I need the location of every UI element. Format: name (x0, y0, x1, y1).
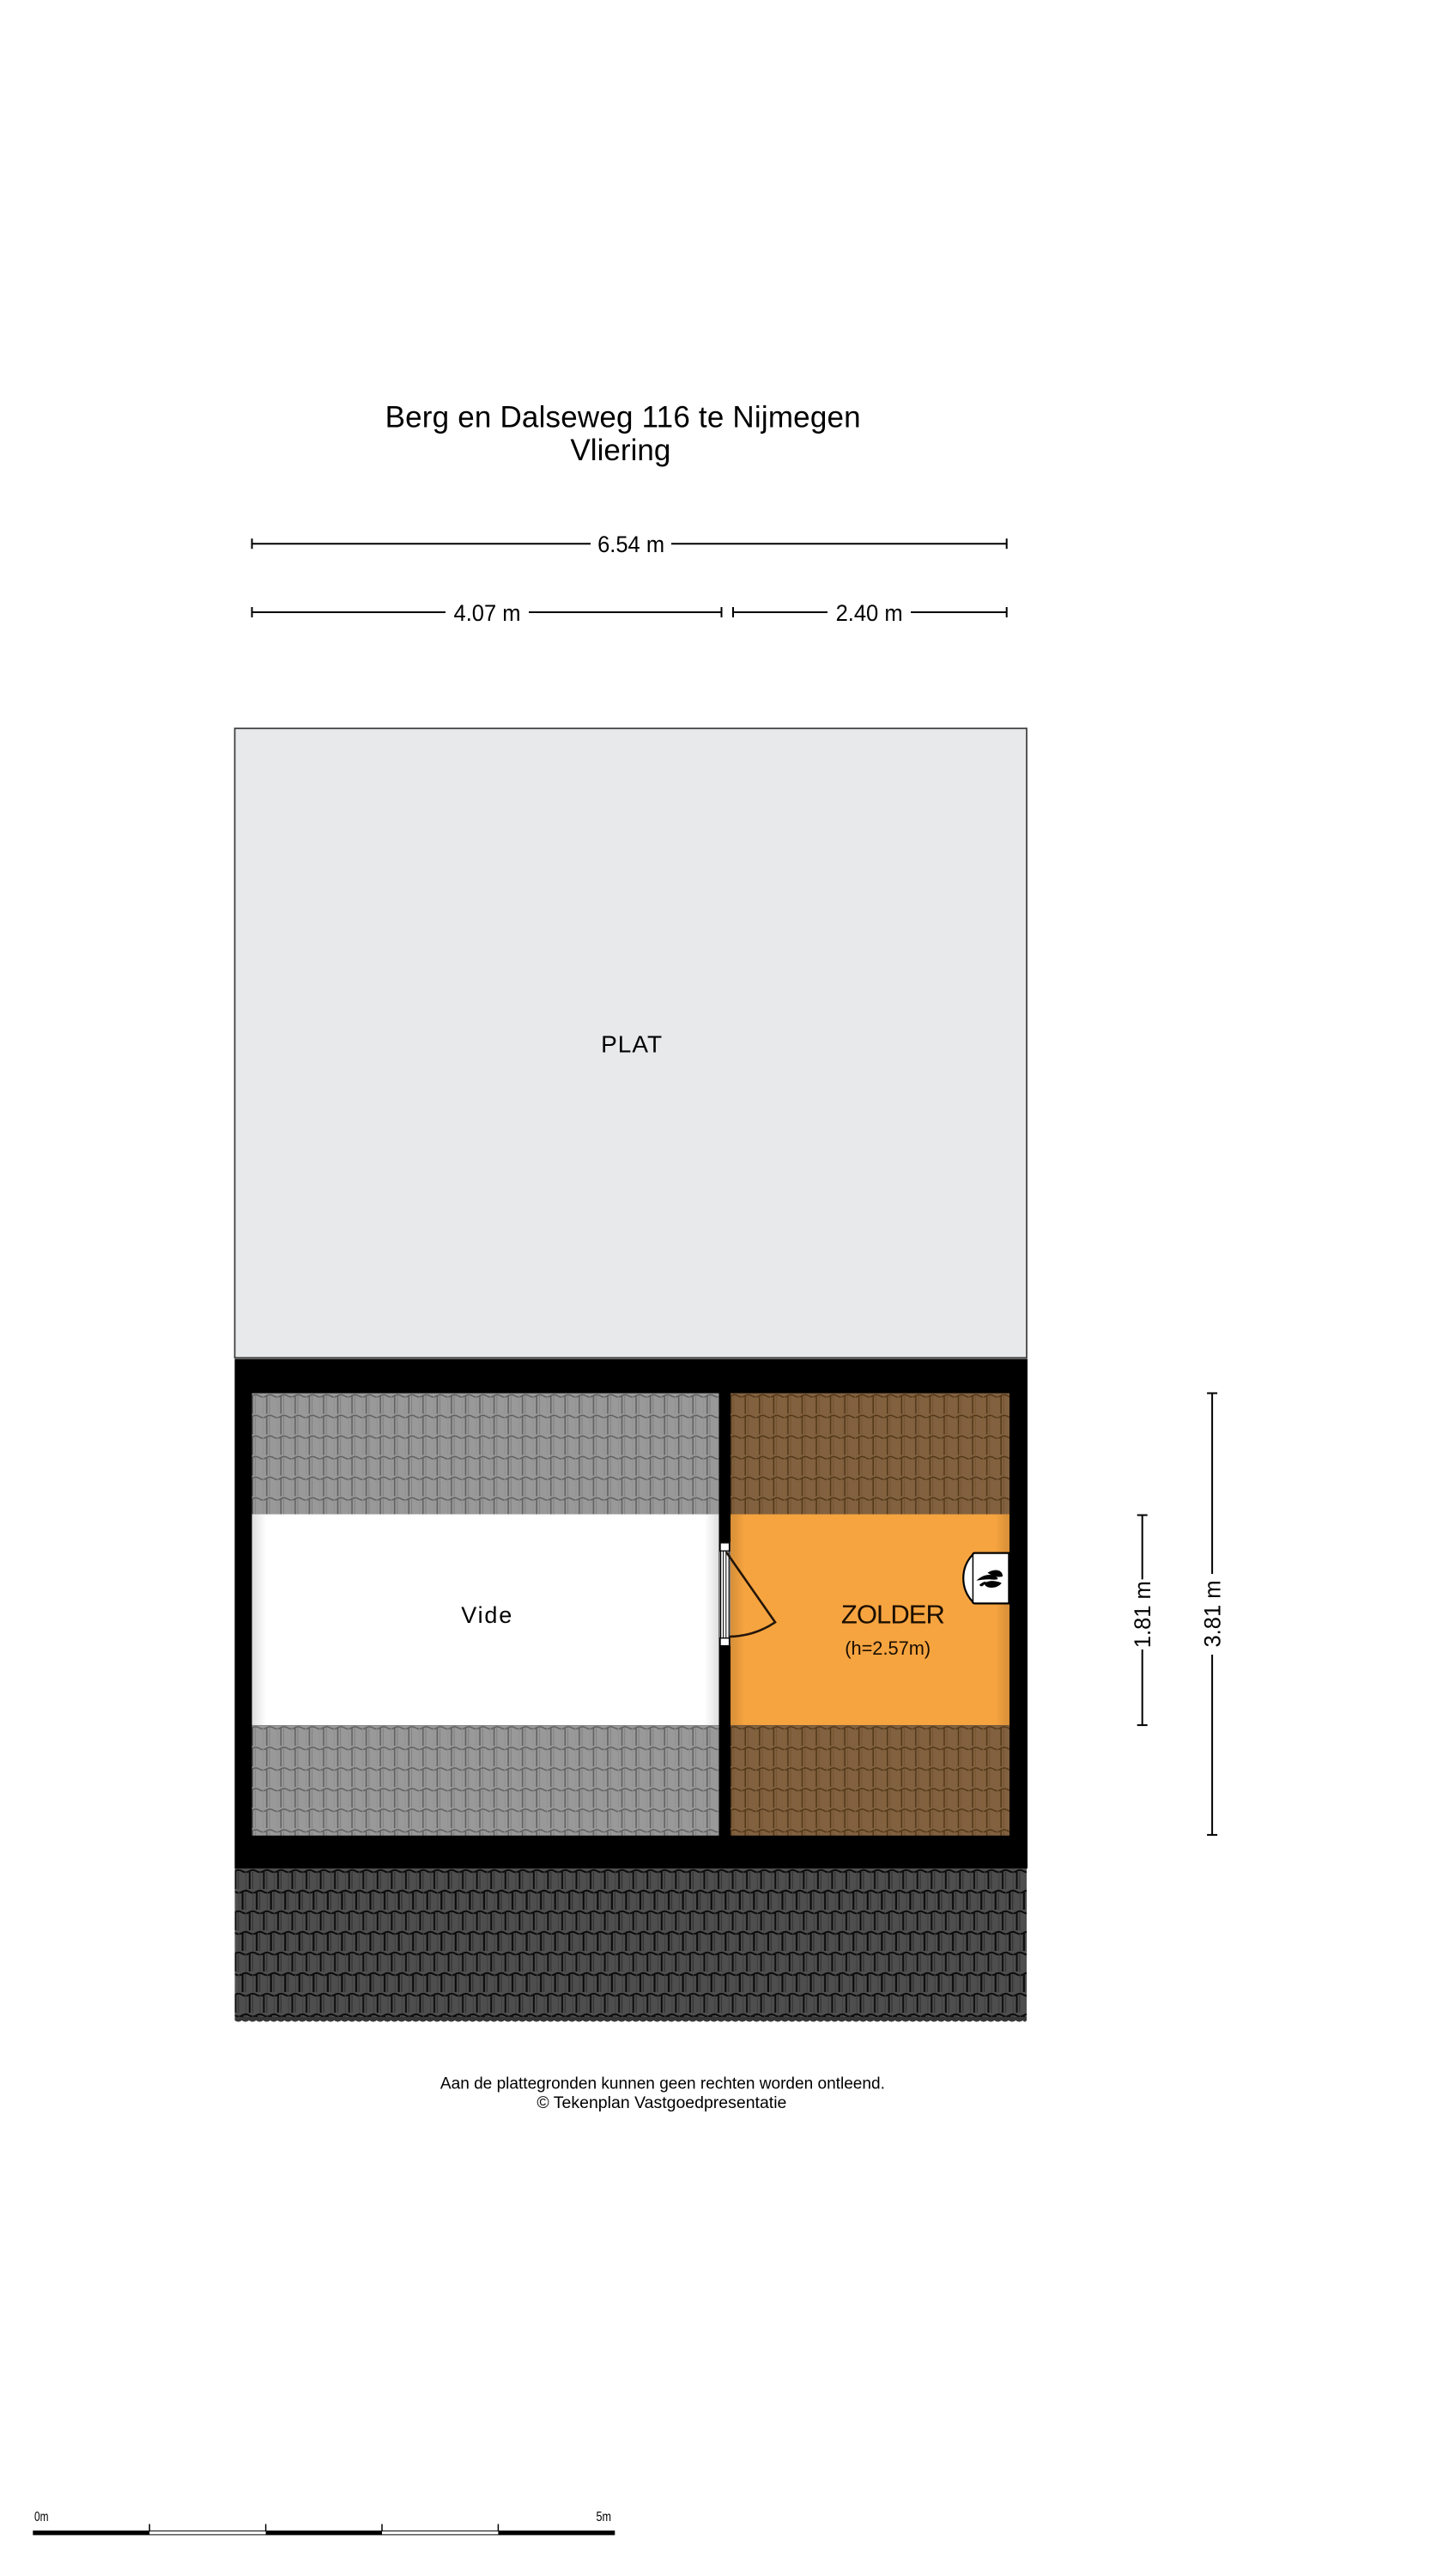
svg-text:Berg en Dalseweg 116 te Nijmeg: Berg en Dalseweg 116 te Nijmegen (385, 400, 861, 434)
svg-text:3.81 m: 3.81 m (1200, 1581, 1226, 1648)
svg-text:Vliering: Vliering (570, 434, 670, 467)
svg-text:PLAT: PLAT (601, 1031, 662, 1058)
svg-text:6.54 m: 6.54 m (597, 532, 664, 557)
svg-text:(h=2.57m): (h=2.57m) (845, 1637, 931, 1659)
svg-text:5m: 5m (597, 2510, 612, 2524)
svg-text:Vide: Vide (461, 1602, 512, 1628)
svg-text:0m: 0m (34, 2510, 49, 2524)
svg-text:ZOLDER: ZOLDER (841, 1599, 945, 1629)
svg-text:Aan de plattegronden kunnen ge: Aan de plattegronden kunnen geen rechten… (440, 2075, 885, 2093)
svg-text:1.81 m: 1.81 m (1130, 1581, 1155, 1648)
svg-text:2.40 m: 2.40 m (836, 600, 903, 626)
svg-text:© Tekenplan Vastgoedpresentati: © Tekenplan Vastgoedpresentatie (537, 2094, 786, 2112)
svg-text:4.07 m: 4.07 m (454, 600, 521, 626)
